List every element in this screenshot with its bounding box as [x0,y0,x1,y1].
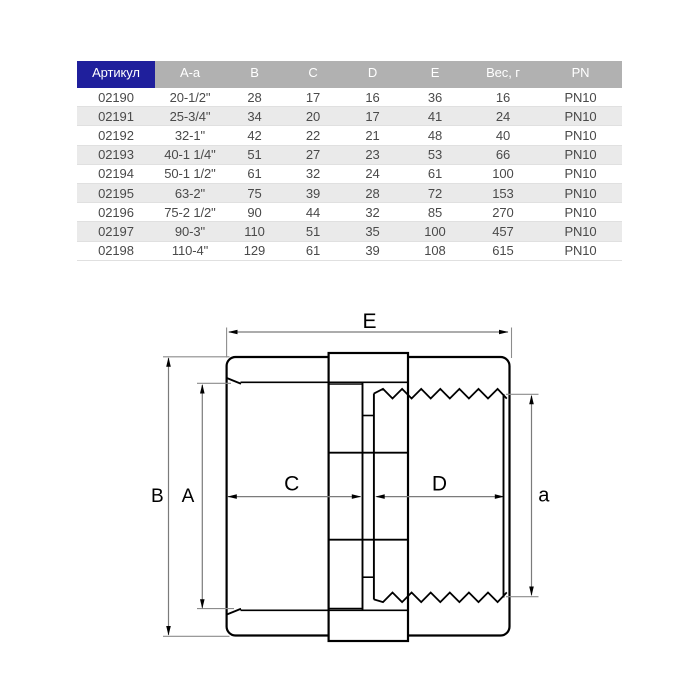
svg-text:C: C [284,473,299,496]
svg-text:B: B [151,486,164,507]
svg-text:A: A [182,486,195,507]
svg-text:a: a [538,485,550,507]
svg-text:D: D [432,473,447,496]
svg-text:E: E [362,310,376,333]
